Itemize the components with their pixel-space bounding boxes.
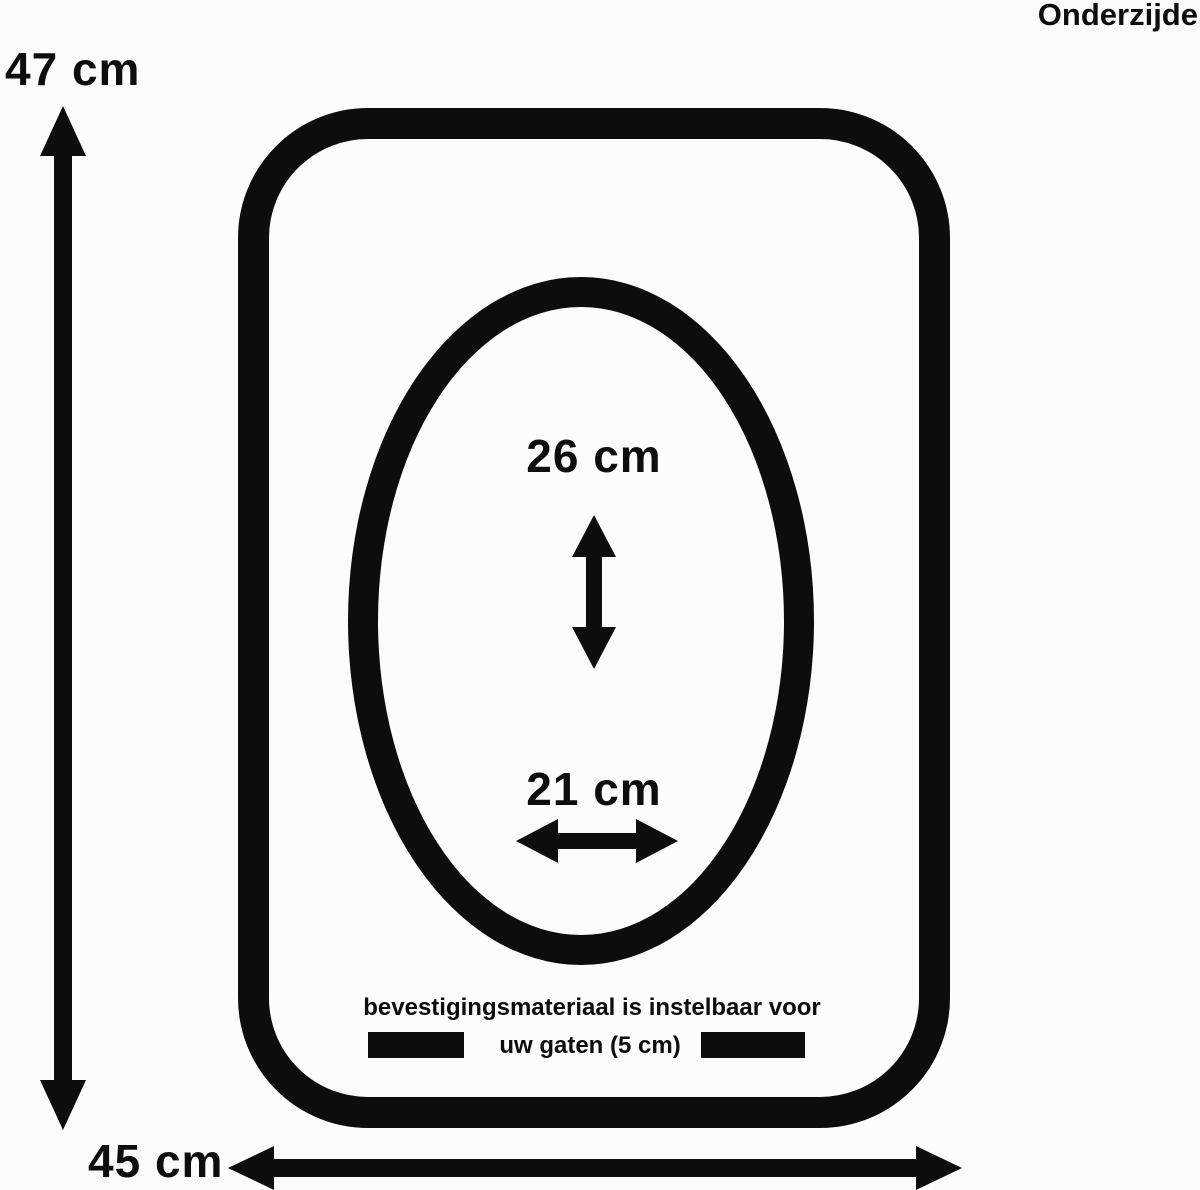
mounting-note-line2: uw gaten (5 cm) bbox=[499, 1032, 680, 1060]
mounting-bar-right bbox=[701, 1032, 805, 1058]
toilet-seat-dimension-diagram: Onderzijde 47 cm 26 cm 21 cm bevestiging… bbox=[0, 0, 1200, 1190]
hole-width-double-arrow-icon bbox=[516, 819, 678, 863]
mounting-bar-left bbox=[368, 1032, 464, 1058]
height-dimension-double-arrow-icon bbox=[40, 106, 86, 1130]
hole-length-label: 26 cm bbox=[526, 431, 661, 481]
mounting-note-line1: bevestigingsmateriaal is instelbaar voor bbox=[363, 994, 821, 1022]
view-title: Onderzijde bbox=[1038, 0, 1198, 34]
hole-width-label: 21 cm bbox=[526, 764, 661, 814]
width-dimension-double-arrow-icon bbox=[228, 1146, 962, 1190]
hole-length-double-arrow-icon bbox=[572, 515, 616, 669]
overall-width-label: 45 cm bbox=[88, 1136, 223, 1186]
overall-height-label: 47 cm bbox=[5, 44, 140, 94]
